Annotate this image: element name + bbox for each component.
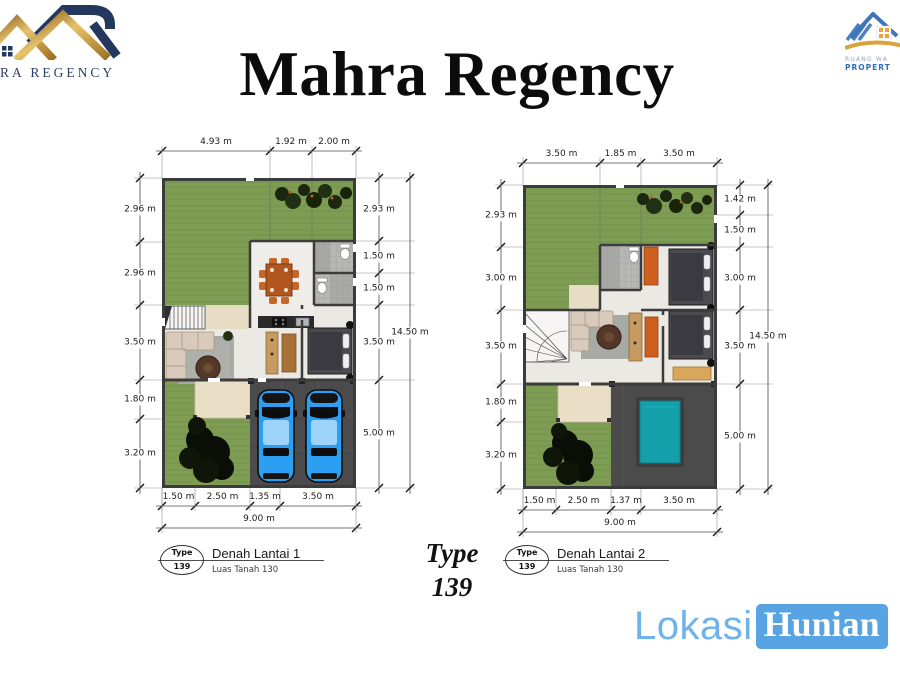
logo-right-line1: RUANG WA [845,56,900,63]
dimension-label: 1.42 m [723,195,757,206]
page-title: Mahra Regency [239,38,674,111]
living-room [166,331,234,384]
dimension-label: 2.96 m [123,205,157,216]
logo-right-line2: PROPERT [845,63,900,72]
staircase [165,306,205,329]
car [255,390,297,482]
slide: RA REGENCY RUANG WA PROPERT Mahra Regenc… [0,0,900,675]
wardrobe [629,313,642,361]
dimension-label: 1.35 m [249,492,281,503]
dimension-label: 9.00 m [604,518,636,529]
pool [636,397,684,467]
dimension-label: 1.50 m [362,252,396,263]
floor-plan-2-drawing [523,185,717,489]
plan-1-label-plate: Type 139 Denah Lantai 1 Luas Tanah 130 [158,544,324,582]
type-callout-line1: Type [426,537,479,571]
dimension-label: 1.80 m [123,394,157,405]
winder-staircase [525,310,569,362]
bedroom1-bed [669,242,715,312]
dimension-label: 3.00 m [723,273,757,284]
dimension-label: 1.50 m [362,284,396,295]
dimension-label: 5.00 m [723,431,757,442]
terrace [195,381,250,418]
roof-deck [609,381,717,488]
dimension-label: 3.50 m [663,149,695,160]
terrace [558,384,611,422]
dimension-label: 9.00 m [243,514,275,525]
dimension-label: 3.20 m [123,448,157,459]
dimension-label: 1.50 m [723,226,757,237]
property-logo: RUANG WA PROPERT [845,4,900,72]
kitchen-counter [258,316,314,328]
plan-1-title: Denah Lantai 1 [212,546,300,561]
dimension-label: 1.80 m [484,398,518,409]
footer-brand-hunian: Hunian [756,604,888,649]
toilet-icon [317,278,327,294]
dimension-label: 3.50 m [484,342,518,353]
dimension-label: 1.37 m [610,496,642,507]
dimension-label: 5.00 m [362,429,396,440]
bedroom2-bed [669,311,715,380]
type-badge-num: 139 [174,563,191,571]
car [303,390,345,482]
type-badge-num: 139 [519,563,536,571]
type-badge-top: Type [172,549,193,557]
dimension-label: 2.00 m [318,137,350,148]
dimension-label: 4.93 m [200,137,232,148]
dimension-label: 3.50 m [362,337,396,348]
family-room [571,311,658,361]
dimension-label: 1.85 m [605,149,637,160]
toilet-icon [340,244,350,260]
plan-1-subtitle: Luas Tanah 130 [212,565,278,575]
dimension-label: 1.92 m [275,137,307,148]
dimension-label: 14.50 m [390,328,429,339]
dimension-label: 3.00 m [484,273,518,284]
plan-2-label-plate: Type 139 Denah Lantai 2 Luas Tanah 130 [503,544,669,582]
type-callout: Type 139 [426,537,479,605]
footer-brand-lokasi: Lokasi [634,604,753,649]
bathroom [600,245,641,290]
dimension-label: 2.96 m [123,268,157,279]
dimension-label: 2.50 m [207,492,239,503]
plant [223,331,233,341]
dimension-label: 3.50 m [546,149,578,160]
logo-left-caption: RA REGENCY [0,65,140,81]
cabinet [645,317,658,357]
footer-brand: Lokasi Hunian [634,604,888,649]
dimension-label: 14.50 m [748,332,787,343]
floor-plan-1-drawing [162,178,356,488]
dimension-label: 2.93 m [484,211,518,222]
bedroom-bed [308,321,354,382]
dimension-label: 1.50 m [524,496,556,507]
type-badge: Type 139 [160,545,204,575]
toilet-icon [629,247,639,263]
plan-2-title: Denah Lantai 2 [557,546,645,561]
property-logo-house-icon [845,4,900,52]
mahra-regency-logo: RA REGENCY [0,2,140,81]
dimension-label: 1.50 m [163,492,195,503]
dimension-label: 3.50 m [123,337,157,348]
dimension-label: 3.20 m [484,450,518,461]
type-badge: Type 139 [505,545,549,575]
mahra-regency-logo-icon [0,2,125,60]
dresser [644,247,658,285]
type-badge-top: Type [517,549,538,557]
plan-2-subtitle: Luas Tanah 130 [557,565,623,575]
dimension-label: 3.50 m [302,492,334,503]
dimension-label: 2.93 m [362,204,396,215]
type-callout-line2: 139 [426,571,479,605]
landing [569,285,600,310]
desk [673,367,711,380]
dimension-label: 2.50 m [568,496,600,507]
dimension-label: 3.50 m [663,496,695,507]
carport [248,378,356,486]
dimension-label: 3.50 m [723,342,757,353]
